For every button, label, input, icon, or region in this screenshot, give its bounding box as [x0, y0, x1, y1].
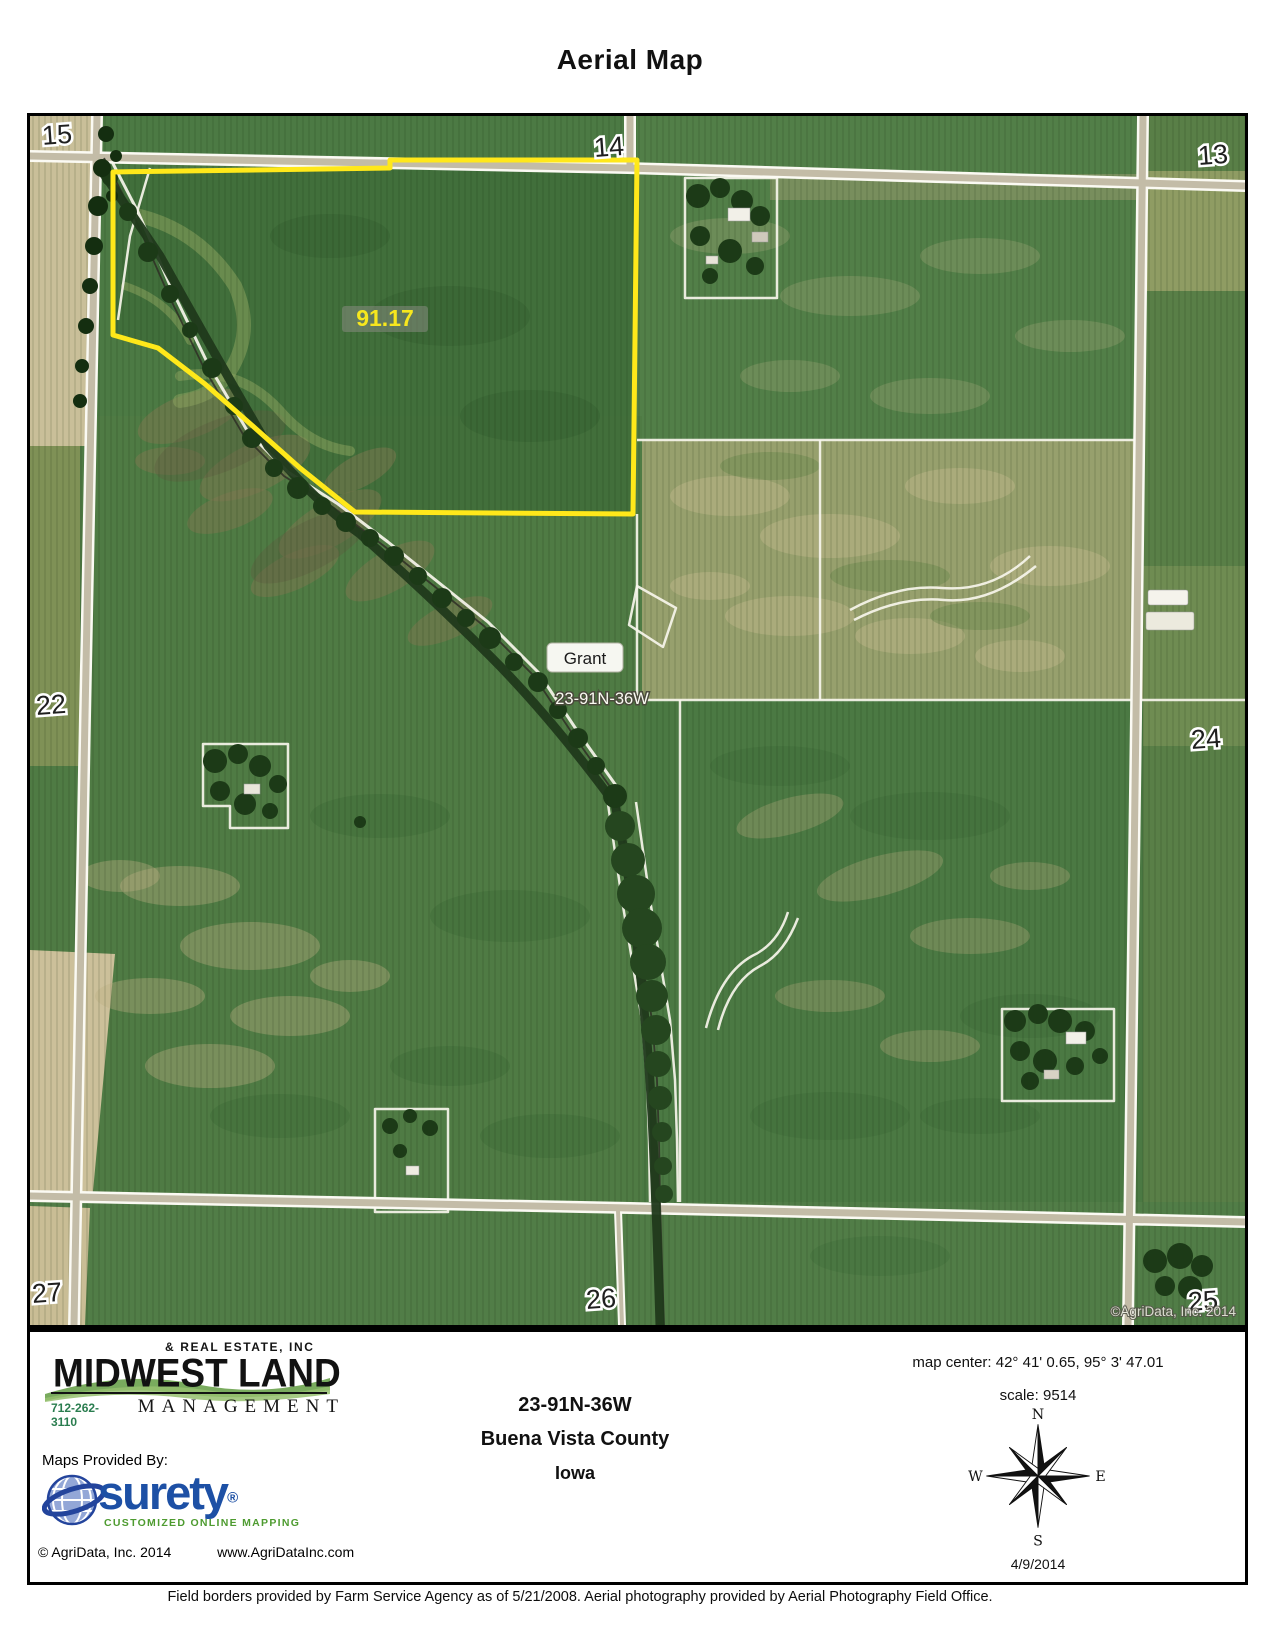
- map-date: 4/9/2014: [848, 1556, 1228, 1572]
- agridata-credit: © AgriData, Inc. 2014 www.AgriDataInc.co…: [38, 1544, 354, 1560]
- map-center-coordinates: map center: 42° 41' 0.65, 95° 3' 47.01: [848, 1354, 1228, 1371]
- logo-rule: [51, 1392, 327, 1394]
- compass-south-label: S: [1033, 1533, 1043, 1549]
- place-label: Grant: [564, 649, 607, 668]
- aerial-map: 15 14 13 22 24 27 26 25 91.17 Grant 23-9…: [27, 113, 1248, 1328]
- company-division: MANAGEMENT: [138, 1396, 345, 1418]
- imagery-watermark: ©AgriData, Inc. 2014: [1110, 1304, 1236, 1319]
- map-footer: & REAL ESTATE, INC MIDWEST LAND 712-262-…: [27, 1328, 1248, 1585]
- aerial-map-page: Aerial Map: [0, 0, 1275, 1650]
- midwest-land-logo: & REAL ESTATE, INC MIDWEST LAND 712-262-…: [45, 1338, 345, 1438]
- section-label-26: 26: [585, 1283, 617, 1315]
- section-label-27: 27: [31, 1277, 63, 1309]
- surety-wordmark: surety: [98, 1466, 227, 1519]
- section-label-22: 22: [35, 689, 67, 721]
- surety-tagline: CUSTOMIZED ONLINE MAPPING: [104, 1517, 300, 1529]
- township-range-label: 23-91N-36W: [555, 690, 649, 708]
- compass-north-label: N: [1032, 1407, 1044, 1423]
- agridata-copyright: © AgriData, Inc. 2014: [38, 1544, 171, 1560]
- section-label-24: 24: [1190, 723, 1222, 755]
- agridata-website: www.AgriDataInc.com: [217, 1544, 354, 1560]
- company-name: MIDWEST LAND: [53, 1351, 341, 1396]
- registered-mark: ®: [227, 1490, 238, 1507]
- surety-logo: surety® CUSTOMIZED ONLINE MAPPING: [42, 1469, 300, 1531]
- section-label-15: 15: [41, 119, 73, 151]
- location-trs: 23-91N-36W: [420, 1394, 730, 1417]
- company-phone: 712-262-3110: [51, 1401, 124, 1429]
- compass-east-label: E: [1095, 1469, 1105, 1485]
- location-state: Iowa: [420, 1463, 730, 1484]
- section-label-13: 13: [1197, 139, 1229, 171]
- compass-rose: N E S W: [953, 1402, 1123, 1550]
- aerial-imagery: 15 14 13 22 24 27 26 25 91.17 Grant 23-9…: [30, 116, 1245, 1325]
- source-footnote: Field borders provided by Farm Service A…: [0, 1589, 1160, 1605]
- compass-west-label: W: [968, 1469, 983, 1485]
- location-county: Buena Vista County: [420, 1428, 730, 1451]
- page-title: Aerial Map: [0, 44, 1260, 76]
- parcel-acres-label: 91.17: [356, 305, 414, 331]
- section-label-14: 14: [593, 131, 625, 163]
